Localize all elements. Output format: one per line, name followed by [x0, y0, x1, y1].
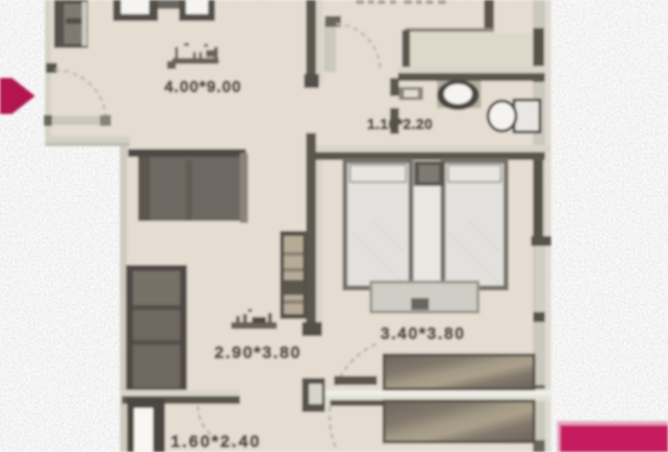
svg-text:3.40*3.80: 3.40*3.80: [380, 325, 465, 343]
svg-text:2.90*3.80: 2.90*3.80: [214, 343, 301, 362]
svg-text:1.10*2.20: 1.10*2.20: [367, 117, 433, 133]
svg-text:4.00*9.00: 4.00*9.00: [164, 79, 242, 96]
svg-text:1.60*2.40: 1.60*2.40: [171, 432, 262, 451]
